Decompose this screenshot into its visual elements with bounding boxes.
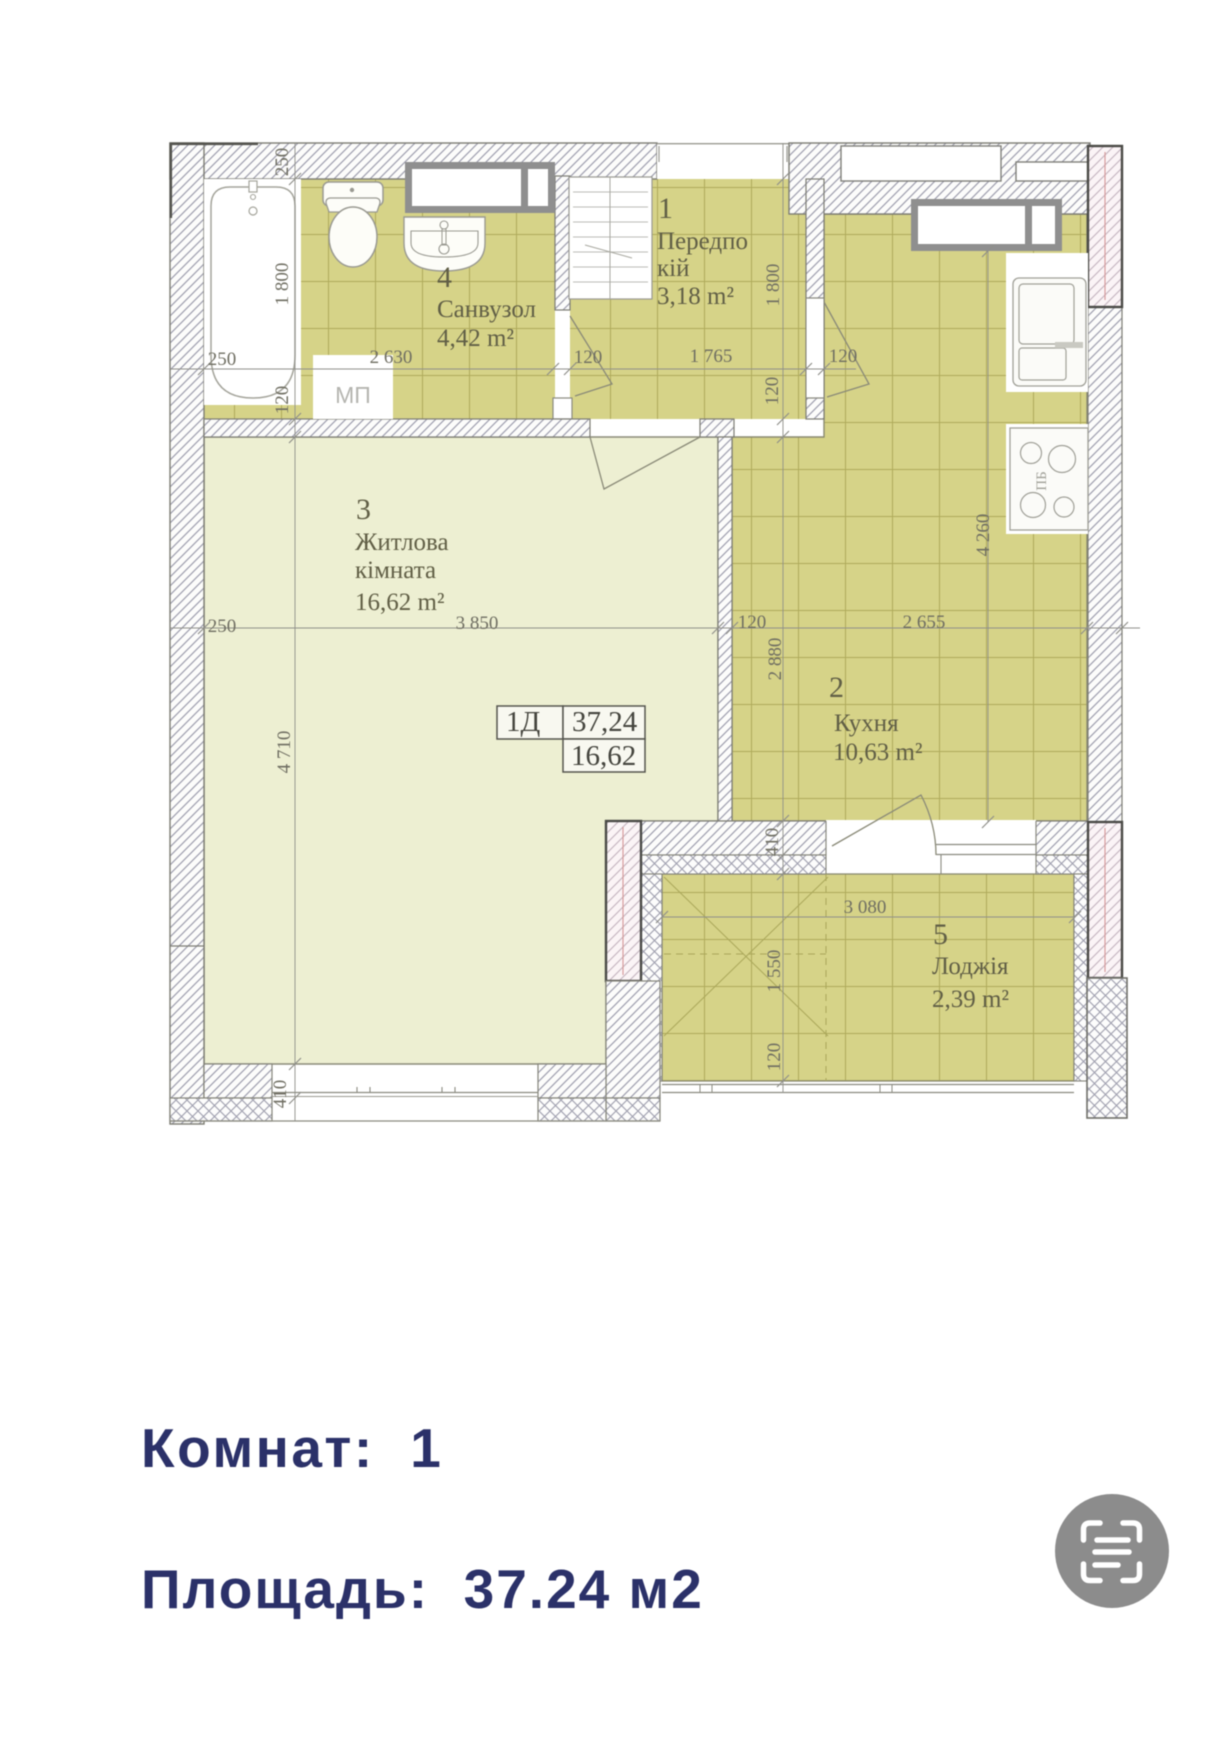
- svg-text:1: 1: [658, 192, 673, 225]
- svg-text:1 550: 1 550: [764, 950, 785, 993]
- svg-text:2 655: 2 655: [903, 612, 946, 633]
- svg-text:10,63 m²: 10,63 m²: [833, 739, 922, 766]
- svg-text:3 080: 3 080: [844, 897, 887, 918]
- svg-text:кій: кій: [657, 255, 689, 282]
- svg-text:16,62 m²: 16,62 m²: [355, 589, 444, 616]
- svg-text:250: 250: [208, 616, 237, 637]
- svg-text:120: 120: [738, 612, 767, 633]
- svg-text:120: 120: [764, 1043, 785, 1072]
- svg-text:1 765: 1 765: [690, 346, 733, 367]
- svg-text:кімната: кімната: [355, 557, 436, 584]
- svg-text:1 800: 1 800: [272, 263, 293, 306]
- svg-text:120: 120: [762, 377, 783, 406]
- svg-text:5: 5: [933, 918, 948, 951]
- svg-text:Комнат: 1: Комнат: 1: [141, 1417, 443, 1479]
- svg-text:4 710: 4 710: [274, 731, 295, 774]
- svg-text:4: 4: [437, 261, 452, 294]
- svg-text:120: 120: [829, 346, 858, 367]
- svg-text:410: 410: [762, 828, 783, 857]
- svg-text:4 260: 4 260: [973, 514, 994, 557]
- svg-text:1 800: 1 800: [763, 264, 784, 307]
- svg-text:Кухня: Кухня: [834, 710, 899, 737]
- svg-text:2,39 m²: 2,39 m²: [932, 986, 1009, 1013]
- svg-text:Площадь: 37.24 м2: Площадь: 37.24 м2: [141, 1558, 704, 1620]
- svg-text:250: 250: [208, 349, 237, 370]
- svg-text:16,62: 16,62: [571, 740, 636, 772]
- svg-text:Передпо: Передпо: [657, 228, 748, 255]
- svg-text:ПБ: ПБ: [1034, 471, 1050, 490]
- svg-text:2 880: 2 880: [765, 638, 786, 681]
- svg-text:410: 410: [270, 1080, 291, 1109]
- svg-text:3 850: 3 850: [456, 613, 499, 634]
- svg-text:3: 3: [356, 493, 371, 526]
- svg-text:4,42 m²: 4,42 m²: [437, 325, 514, 352]
- svg-text:3,18 m²: 3,18 m²: [657, 283, 734, 310]
- svg-text:2 630: 2 630: [370, 347, 413, 368]
- svg-text:Санвузол: Санвузол: [437, 296, 536, 323]
- svg-text:120: 120: [272, 386, 293, 415]
- svg-text:250: 250: [272, 148, 293, 177]
- svg-text:Лоджія: Лоджія: [932, 953, 1009, 980]
- svg-text:МП: МП: [335, 382, 371, 408]
- svg-text:120: 120: [574, 347, 603, 368]
- svg-text:37,24: 37,24: [572, 706, 638, 738]
- svg-text:Житлова: Житлова: [355, 529, 449, 556]
- svg-text:2: 2: [829, 671, 844, 704]
- svg-text:1Д: 1Д: [506, 706, 541, 738]
